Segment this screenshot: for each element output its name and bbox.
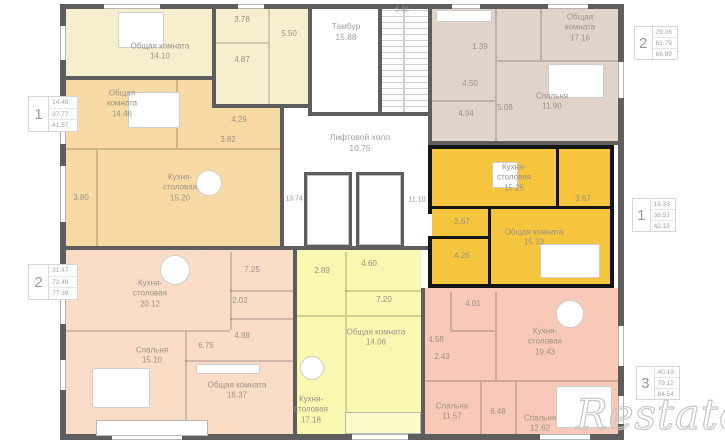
room-label: 4.50 — [455, 79, 485, 89]
rooms-count: 2 — [635, 27, 653, 59]
room-label: 4.88 — [227, 331, 257, 341]
wall — [428, 9, 432, 145]
window — [618, 62, 624, 98]
room-label: 4.29 — [224, 115, 254, 125]
partition — [495, 292, 497, 380]
wall — [421, 288, 425, 434]
area-value: 41.57 — [49, 120, 77, 131]
partition — [297, 315, 421, 317]
balcony-outline — [96, 420, 208, 436]
area-value: 31.47 — [49, 265, 77, 277]
room-label: 5.40 — [388, 5, 416, 14]
room-label: Общая комната14.06 — [336, 328, 416, 349]
furniture-bed-outline — [92, 368, 150, 408]
room-label: 7.25 — [237, 265, 267, 275]
room-label: Кухня-столовая19.43 — [519, 326, 571, 357]
room-label: Общая комната14.46 — [98, 88, 146, 119]
area-value: 29.06 — [653, 27, 677, 38]
selected-entry-door-gap — [426, 214, 432, 236]
partition — [185, 332, 187, 434]
elevator-shaft — [356, 172, 404, 248]
window — [548, 4, 588, 9]
unit-info-card-selected: 1 15.33 38.51 42.18 — [632, 198, 676, 232]
room-label: Общая комната15.33 — [504, 228, 564, 249]
furniture-counter-outline — [436, 10, 492, 22]
stairwell — [382, 9, 428, 112]
room-label: 4.94 — [451, 109, 481, 119]
room-label: 4.60 — [354, 259, 384, 269]
room-label: 7.20 — [369, 295, 399, 305]
partition — [480, 382, 482, 434]
room-label: 3.80 — [67, 193, 95, 203]
wall — [312, 112, 432, 116]
room-label: Спальня15.10 — [122, 346, 182, 367]
wall — [280, 108, 284, 250]
partition — [216, 42, 268, 44]
room-label: 4.87 — [227, 55, 257, 65]
room-label: 3.67 — [568, 194, 598, 204]
room-label: 2.89 — [307, 266, 337, 276]
wall — [216, 104, 308, 108]
area-value: 66.89 — [653, 49, 677, 59]
room-label: Тамбур15.88 — [316, 21, 376, 43]
partition — [425, 380, 618, 382]
room-label: 4.58 — [421, 335, 451, 345]
room-label: Лифтовой холл10.75 — [313, 132, 407, 154]
wall — [66, 76, 216, 80]
furniture-bed-outline — [540, 244, 600, 278]
room-label: 4.26 — [447, 251, 477, 261]
room-label: Общая комната16.37 — [195, 381, 279, 402]
floor-plan: Общая комната14.10 3.78 4.87 5.50 Общая … — [0, 0, 725, 444]
area-value: 61.79 — [653, 38, 677, 49]
wall — [212, 9, 216, 108]
partition — [432, 100, 495, 102]
window — [104, 4, 160, 9]
room-label: 3.82 — [213, 135, 243, 145]
area-value: 72.49 — [49, 277, 77, 289]
room-label: 8.48 — [483, 407, 513, 417]
room-label: 5.50 — [274, 29, 304, 39]
rooms-count: 2 — [29, 265, 49, 299]
partition — [345, 252, 347, 315]
partition — [230, 318, 293, 320]
selected-partition — [556, 149, 559, 206]
selected-partition — [488, 209, 491, 284]
room-label: 13.74 — [280, 194, 308, 203]
room-label: 2.02 — [225, 296, 255, 306]
room-label: Кухня-столовая15.20 — [154, 172, 206, 203]
area-value: 77.39 — [49, 288, 77, 299]
window — [352, 434, 408, 440]
partition — [450, 330, 495, 332]
room-label: 11.10 — [403, 195, 431, 204]
room-label: 2.43 — [427, 352, 457, 362]
rooms-count: 1 — [633, 199, 651, 231]
room-label: Общая комната14.10 — [125, 42, 195, 63]
partition — [450, 292, 452, 330]
unit-info-card: 1 14.46 37.77 41.57 — [28, 96, 78, 132]
room-label: 3.67 — [447, 217, 477, 227]
room-label: 4.01 — [458, 299, 488, 309]
watermark: Restate — [576, 390, 725, 439]
room-label: Кухня-столовая15.25 — [488, 162, 540, 193]
selected-partition — [432, 206, 610, 209]
unit-info-card: 2 29.06 61.79 66.89 — [634, 26, 678, 60]
room-label: Спальня12.62 — [515, 414, 565, 435]
area-value: 15.33 — [651, 199, 675, 210]
window — [60, 360, 66, 390]
rooms-count: 1 — [29, 97, 49, 131]
area-value: 37.77 — [49, 109, 77, 121]
partition — [185, 360, 293, 362]
area-value: 42.18 — [651, 221, 675, 231]
room-label: 5.08 — [490, 103, 520, 113]
partition — [66, 330, 230, 332]
furniture-table-outline — [300, 356, 324, 380]
elevator-shaft — [304, 172, 352, 248]
area-value: 14.46 — [49, 97, 77, 109]
selected-partition — [432, 236, 488, 239]
balcony-outline — [345, 412, 421, 434]
room-label: 1.39 — [465, 42, 495, 52]
window — [60, 26, 66, 60]
room-label: Общая комната17.16 — [556, 12, 604, 43]
partition — [540, 9, 542, 60]
partition — [497, 60, 618, 62]
window — [452, 4, 480, 9]
room-label: Спальня11.57 — [427, 402, 477, 423]
area-value: 40.19 — [655, 367, 679, 378]
furniture-sofa-outline — [196, 364, 260, 374]
room-label: Кухня-столовая20.12 — [124, 278, 176, 309]
partition — [345, 290, 421, 292]
unit-info-card: 2 31.47 72.49 77.39 — [28, 264, 78, 300]
partition — [268, 9, 270, 104]
wall — [308, 9, 312, 116]
area-value: 79.12 — [655, 378, 679, 389]
window — [60, 166, 66, 222]
room-label: Спальня11.90 — [522, 92, 582, 113]
window — [238, 4, 264, 9]
window — [618, 326, 624, 366]
partition — [230, 290, 293, 292]
partition — [96, 150, 98, 246]
room-label: 6.75 — [191, 341, 221, 351]
partition — [66, 148, 280, 150]
room-label: 3.78 — [227, 15, 257, 25]
room-label: Кухня-столовая17.18 — [285, 394, 337, 425]
furniture-table-outline — [556, 300, 584, 328]
partition — [495, 9, 497, 141]
area-value: 38.51 — [651, 210, 675, 221]
